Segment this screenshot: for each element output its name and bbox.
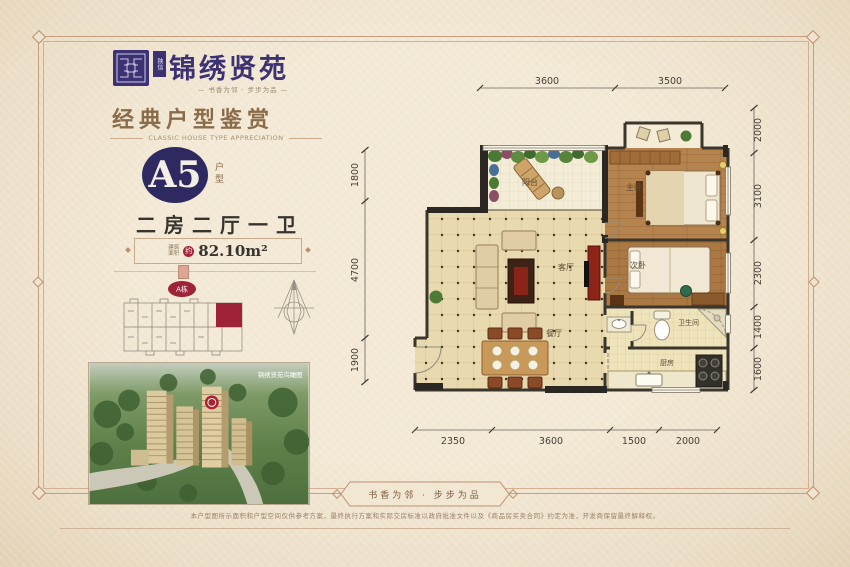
area-value: 82.10m² <box>198 242 267 260</box>
dining-chair <box>528 328 542 339</box>
dining-chair <box>488 328 502 339</box>
label-living: 客厅 <box>558 262 574 272</box>
label-second: 次卧 <box>630 260 646 270</box>
lamp <box>720 228 727 235</box>
shower-head <box>714 315 720 321</box>
label-master: 主卧 <box>626 182 642 192</box>
dining-chair <box>488 377 502 388</box>
unit-code: A5 <box>149 154 202 196</box>
toilet <box>655 320 670 340</box>
dim-top-1: 3600 <box>535 76 559 87</box>
keyplan-highlighted-unit <box>216 303 242 327</box>
table-runner <box>514 267 528 295</box>
dim-right-2: 3100 <box>753 184 764 208</box>
brochure-page: { "brand": { "vertical_mark": "陕信", "nam… <box>0 0 850 567</box>
unit-area-box: 建筑 面积 约 82.10m² <box>134 238 302 264</box>
keyplan-badge: A栋 <box>176 285 188 294</box>
plant <box>430 291 443 304</box>
subtitle-rule <box>110 138 143 139</box>
dim-bottom-1: 2350 <box>441 436 465 447</box>
desk <box>692 293 724 305</box>
dim-bottom-3: 1500 <box>622 436 646 447</box>
disclaimer-text: 本户型图所示面积和户型空间仅供参考方案，最终执行方案和实际交房标准以政府批准文件… <box>0 510 850 520</box>
building-keyplan: A栋 <box>116 279 256 363</box>
area-prefix: 建筑 面积 <box>168 245 179 258</box>
subtitle-rule <box>289 138 322 139</box>
dim-left-1: 1800 <box>350 163 361 187</box>
footer-slogan-pill: 书香为邻 · 步步为品 <box>330 481 520 507</box>
dining-furniture <box>482 328 548 388</box>
tv <box>584 261 589 287</box>
desk-chair <box>681 286 692 297</box>
dim-right-1: 2000 <box>753 118 764 142</box>
dim-right-5: 1600 <box>753 357 764 381</box>
brand-name: 锦绣贤苑 <box>169 47 289 86</box>
plant <box>681 131 692 142</box>
unit-code-label: 户型 <box>212 162 225 186</box>
footer-slogan: 书香为邻 · 步步为品 <box>368 489 482 501</box>
tower-badge-icon <box>205 396 219 410</box>
aerial-caption: 锦绣贤苑鸟瞰图 <box>258 370 303 379</box>
hall-basin <box>607 317 631 332</box>
label-kitchen: 厨房 <box>660 358 674 367</box>
section-subtitle: CLASSIC HOUSE TYPE APPRECIATION <box>148 134 283 142</box>
floorplan: 阳台 主卧 客厅 次卧 餐厅 卫生间 厨房 3600 3500 1800 470… <box>330 75 770 475</box>
armchair <box>502 231 536 250</box>
unit-code-badge: A5 <box>142 147 208 203</box>
dining-chair <box>508 377 522 388</box>
dining-chair <box>508 328 522 339</box>
dim-bottom-2: 3600 <box>539 436 563 447</box>
unit-rooms-desc: 二房二厅一卫 <box>136 209 304 238</box>
cabinet <box>610 295 624 306</box>
brand-seal-icon <box>112 49 150 87</box>
area-prefix-line2: 面积 <box>168 251 179 257</box>
dim-top-2: 3500 <box>658 76 682 87</box>
label-bath: 卫生间 <box>678 318 699 327</box>
balcony-table <box>552 187 564 199</box>
area-approx-circle: 约 <box>183 246 194 257</box>
tv-console <box>588 246 600 300</box>
pillow <box>706 175 717 196</box>
dim-left-3: 1900 <box>350 348 361 372</box>
dim-left-2: 4700 <box>350 258 361 282</box>
kitchen-sink <box>636 374 662 386</box>
dim-right-3: 2300 <box>753 261 764 285</box>
section-title: 经典户型鉴赏 <box>112 102 274 134</box>
pillow <box>706 200 717 221</box>
label-balcony: 阳台 <box>522 177 538 187</box>
section-subtitle-row: CLASSIC HOUSE TYPE APPRECIATION <box>110 134 322 142</box>
aerial-photo: 锦绣贤苑鸟瞰图 <box>88 362 310 505</box>
bottom-rule <box>60 528 790 529</box>
dim-bottom-4: 2000 <box>676 436 700 447</box>
label-dining: 餐厅 <box>546 329 562 338</box>
pill-side-diamond-icon <box>509 490 517 498</box>
toilet-tank <box>654 311 670 319</box>
north-compass-icon <box>268 276 320 338</box>
left-column-divider <box>114 271 316 272</box>
divider-ornament-icon <box>178 265 189 279</box>
dining-chair <box>528 377 542 388</box>
pill-side-diamond-icon <box>333 490 341 498</box>
dim-right-4: 1400 <box>753 315 764 339</box>
pillow <box>630 271 640 288</box>
wardrobe <box>610 151 680 164</box>
brand-vertical-mark: 陕信 <box>153 51 166 77</box>
sofa <box>476 245 498 309</box>
brand-tagline: — 书香为邻 · 步步为品 — <box>168 84 318 94</box>
